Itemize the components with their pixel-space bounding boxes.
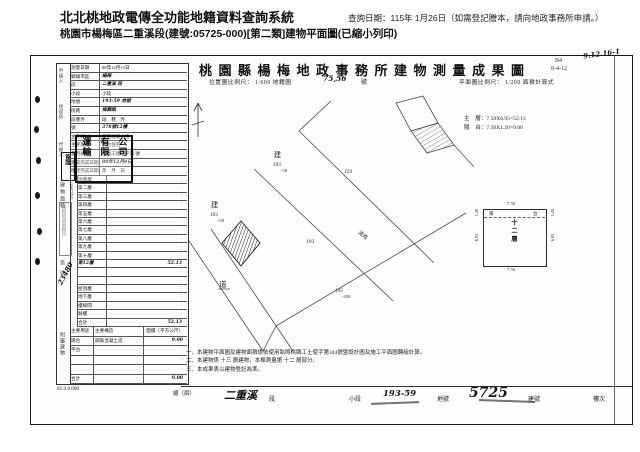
site-plan-drawing: 建 193 -58 193 建 193 -59 193 195 -458 道 道… xyxy=(186,93,476,353)
section-name: 二重溪 xyxy=(224,387,257,403)
area-row: 合計 52.13 xyxy=(77,319,187,327)
area-row-label: 樓梯間 xyxy=(77,302,107,309)
company-seal-col: 運輸 xyxy=(82,137,91,181)
area-row: 第十層 ‧ xyxy=(77,252,187,260)
section-label: 段 xyxy=(269,394,275,403)
area-row: 樓梯間 ‧ xyxy=(77,302,187,310)
balcony-label-right: 台 xyxy=(533,211,537,217)
annex-row-area: 9.00 xyxy=(144,375,187,384)
form-row-value: 梅獅路 xyxy=(100,107,187,115)
annex-row-area: ‧ xyxy=(144,356,187,365)
form-row-value: 88年12月15日 xyxy=(100,64,187,72)
area-row-value: ‧ xyxy=(107,201,187,208)
balcony-divider-line xyxy=(484,217,545,218)
survey-document: 都市計劃區 桃園縣楊梅地政事務所建物測量成果圖 B4 8-4-12 9.12.1… xyxy=(30,55,633,425)
margin-mark xyxy=(35,192,40,199)
form-row: 段巷弄 段 巷 弄 xyxy=(70,116,187,125)
floor-plan: 7.50 7.50 1.20 6.95 1.20 6.95 陽 台 十二層 xyxy=(471,197,561,281)
form-row-label: 街路 xyxy=(70,107,100,115)
area-row-label: 第12層 xyxy=(77,260,107,267)
annex-row: 平台 ‧ xyxy=(70,346,187,356)
parcel-number-label: 地號 xyxy=(437,394,449,403)
area-row-label: 第三層 xyxy=(77,193,107,200)
area-row-value: ‧ xyxy=(107,235,187,242)
annex-row-use: 合計 xyxy=(70,375,94,384)
annex-row-use: 平台 xyxy=(70,346,94,355)
page-subtitle: 桃園市楊梅區二重溪段(建號:05725-000)[第二類]建物平面圖(已縮小列印… xyxy=(60,26,397,41)
dim-right: 6.95 xyxy=(550,234,555,241)
annex-row-structure xyxy=(94,365,144,374)
area-row-label: 第五層 xyxy=(77,210,107,217)
area-row-label xyxy=(77,277,107,284)
parcel-label-jian2: 建 xyxy=(211,200,218,209)
dim-top: 7.50 xyxy=(507,201,515,206)
area-row-label: 第九層 xyxy=(77,243,107,250)
area-row: 地下層 ‧ xyxy=(77,293,187,301)
plan-scale-label: 平面圖比例尺： 1/200 面積計算式 xyxy=(459,77,554,86)
area-row: 第二層 ‧ xyxy=(77,184,187,192)
area-row-value: ‧ xyxy=(107,310,187,317)
area-row: 第四層 ‧ xyxy=(77,201,187,209)
corner-code: B4 xyxy=(555,58,562,64)
parcel-boundaries xyxy=(189,96,474,351)
notes-block: 一、本建物平面圖及建物面積係依使用執照桃縣工土使字第344號暨設計圖及施工平面圖… xyxy=(186,349,486,374)
annex-rows: 陽台 鋼筋混凝土造 9.00 平台 ‧ xyxy=(70,337,187,385)
system-title: 北北桃地政電傳全功能地籍資料查詢系統 xyxy=(60,7,294,26)
area-row-value: ‧ xyxy=(107,210,187,217)
annex-row-area: 9.00 xyxy=(144,337,187,346)
form-row: 地號 193-59 地號 xyxy=(70,98,187,107)
company-seal-col: 公司 xyxy=(118,137,127,181)
area-row: 屋頂層 ‧ xyxy=(77,285,187,293)
annex-row-use xyxy=(70,356,94,365)
copy-note: 縮（兩） xyxy=(173,389,195,397)
annex-row-structure xyxy=(94,356,144,365)
parcel-label-195-sub: -458 xyxy=(342,294,351,299)
annex-row-structure xyxy=(94,375,144,384)
area-row-label: 第十層 xyxy=(77,252,107,259)
map-sheet-unit: 號 xyxy=(361,77,367,86)
area-row-label: 第六層 xyxy=(77,218,107,225)
floor-number-label: 樓次 xyxy=(593,394,605,403)
area-row: 第三層 ‧ xyxy=(77,193,187,201)
scribble-mark xyxy=(371,401,419,405)
form-row-value: 193-59 地號 xyxy=(100,98,187,106)
road-label: 道 xyxy=(219,279,227,289)
annex-row: ‧ xyxy=(70,356,187,366)
area-row-value: ‧ xyxy=(107,184,187,191)
floor-area-rows: 地面層 ‧ 第二層 ‧ 第三層 ‧ 第四層 ‧ xyxy=(77,176,187,327)
form-row-label: 段 xyxy=(70,81,100,89)
annex-row: ‧ xyxy=(70,365,187,375)
area-row-label: 第七層 xyxy=(77,226,107,233)
annex-row: 陽台 鋼筋混凝土造 9.00 xyxy=(70,337,187,347)
area-row: ‧ xyxy=(77,268,187,276)
form-row-value: 段 巷 弄 xyxy=(100,116,187,124)
annex-header-row: 主要用途 主要構造 面積（平方公尺） xyxy=(70,327,187,337)
note-3: 三、本成果表以建物登記為準。 xyxy=(186,366,486,374)
area-row-label: 第八層 xyxy=(77,235,107,242)
dim-right-top: 1.20 xyxy=(550,209,555,216)
form-row: 號 378號12樓 xyxy=(70,124,187,133)
annex-structure-header: 主要構造 xyxy=(94,327,144,336)
annex-row-area: ‧ xyxy=(144,346,187,355)
subject-building-hatched xyxy=(222,221,260,266)
form-row: 段 二重溪 段 xyxy=(70,81,187,90)
floor-label: 十二層 xyxy=(509,219,518,244)
annex-row-structure xyxy=(94,346,144,355)
margin-mark xyxy=(35,258,40,265)
annex-row-use: 陽台 xyxy=(70,337,94,346)
area-row: 第七層 ‧ xyxy=(77,226,187,234)
form-row: 小段 小段 xyxy=(70,90,187,99)
area-row-value: ‧ xyxy=(107,285,187,292)
applicant-label: 申請人 xyxy=(58,68,64,84)
corner-code-2: 8-4-12 xyxy=(551,66,567,72)
form-print-code: 85.9.8.000 xyxy=(57,386,79,392)
margin-mark xyxy=(37,228,42,235)
area-row-label: 地下層 xyxy=(77,293,107,300)
company-seal: 運輸 有限 公司 xyxy=(75,135,133,183)
subsection-label: 小段 xyxy=(349,394,361,403)
area-row: 第五層 ‧ xyxy=(77,210,187,218)
margin-mark xyxy=(34,126,39,133)
dim-left-top: 1.20 xyxy=(474,209,479,216)
form-row-label: 鄉鎮市區 xyxy=(70,73,100,81)
form-row-label: 小段 xyxy=(70,90,100,98)
parcel-label-193-top: 193 xyxy=(344,169,353,175)
location-scale-label: 位置圖比例尺： 1/600 地籍圖 xyxy=(209,77,292,86)
area-row-label: 屋頂層 xyxy=(77,285,107,292)
area-row-value: 52.13 xyxy=(107,260,187,267)
annex-row-structure: 鋼筋混凝土造 xyxy=(94,337,144,346)
annex-row-use xyxy=(70,365,94,374)
area-row: 騎樓 ‧ xyxy=(77,310,187,318)
annex-use-header: 主要用途 xyxy=(70,327,94,336)
balcony-label-left: 陽 xyxy=(489,211,493,217)
query-date: 查詢日期：115年 1月26日（如需登記謄本，請向地政事務所申請。） xyxy=(348,12,603,24)
area-row: 第六層 ‧ xyxy=(77,218,187,226)
area-row-label: 騎樓 xyxy=(77,310,107,317)
small-seal-text: 簽證 xyxy=(63,154,71,165)
form-row-value: 378號12樓 xyxy=(100,124,187,132)
annex-strip-label: 附屬建物 xyxy=(58,332,65,356)
form-row: 街路 梅獅路 xyxy=(70,107,187,116)
note-1: 一、本建物平面圖及建物面積係依使用執照桃縣工土使字第344號暨設計圖及施工平面圖… xyxy=(186,349,486,357)
small-seal: 簽證 xyxy=(61,152,75,181)
office-seal: 楊梅地政事務所 xyxy=(59,202,72,256)
area-row-value: ‧ xyxy=(107,293,187,300)
parcel-label-193-59-sub: -59 xyxy=(218,218,225,223)
parcel-label-193-59: 193 xyxy=(210,212,218,218)
scribble-mark xyxy=(479,399,535,403)
office-seal-text: 楊梅地政事務所 xyxy=(61,205,67,236)
area-row-label: 合計 xyxy=(77,319,107,326)
form-row-label: 號 xyxy=(70,124,100,132)
annex-table: 主要用途 主要構造 面積（平方公尺） 陽台 鋼筋混凝土造 9.00 平台 xyxy=(70,327,187,384)
area-row-value: ‧ xyxy=(107,252,187,259)
form-row-label: 地號 xyxy=(70,98,100,106)
annex-row: 合計 9.00 xyxy=(70,375,187,385)
survey-form-table: 申請人 住居所 代理人 建物面積 附屬建物 （平方公尺） 測量日期 88年12月… xyxy=(56,63,189,385)
parcel-label-193-58: 193 xyxy=(273,162,281,168)
area-row-value: 52.13 xyxy=(107,319,187,326)
annex-area-header: 面積（平方公尺） xyxy=(144,327,187,336)
inner-margin-line xyxy=(614,56,615,424)
area-row-value: ‧ xyxy=(107,268,187,275)
form-row-value: 二重溪 段 xyxy=(100,81,187,89)
area-row-label xyxy=(77,268,107,275)
note-2: 二、本建物係 十三 層建物，本棟測量第 十二 層部分。 xyxy=(186,357,486,365)
area-unit-label: （平方公尺） xyxy=(70,180,75,202)
margin-mark xyxy=(36,157,41,164)
map-sheet-number: 75,56 xyxy=(323,74,347,83)
margin-mark xyxy=(35,96,40,103)
query-result-page: 北北桃地政電傳全功能地籍資料查詢系統 查詢日期：115年 1月26日（如需登記謄… xyxy=(0,0,640,452)
company-seal-col: 有限 xyxy=(100,137,109,181)
area-row-label: 第四層 xyxy=(77,201,107,208)
area-row-value: ‧ xyxy=(107,277,187,284)
area-row: 第八層 ‧ xyxy=(77,235,187,243)
parcel-number: 193-59 xyxy=(383,389,416,399)
road-name-label: 道路 xyxy=(357,228,371,241)
area-row-value: ‧ xyxy=(107,226,187,233)
form-row: 鄉鎮市區 楊梅 xyxy=(70,73,187,82)
dim-bottom: 7.50 xyxy=(507,267,515,272)
residence-label: 住居所 xyxy=(58,104,64,120)
form-row-label: 測量日期 xyxy=(70,64,100,72)
area-row: 第12層 52.13 xyxy=(77,260,187,268)
form-row-value: 楊梅 xyxy=(100,73,187,81)
area-row-value: ‧ xyxy=(107,302,187,309)
parcel-label-193-58-sub: -58 xyxy=(281,168,288,173)
area-row-label: 第二層 xyxy=(77,184,107,191)
area-row-value: ‧ xyxy=(107,193,187,200)
area-row: 第九層 ‧ xyxy=(77,243,187,251)
parcel-label-jian1: 建 xyxy=(274,150,281,159)
area-row-value: ‧ xyxy=(107,218,187,225)
dim-left: 6.95 xyxy=(474,234,479,241)
parcel-label-193-mid: 193 xyxy=(306,239,315,245)
area-row-value: ‧ xyxy=(107,243,187,250)
form-row: 測量日期 88年12月15日 xyxy=(70,64,187,73)
form-row-label: 段巷弄 xyxy=(70,116,100,124)
annex-row-area: ‧ xyxy=(144,365,187,374)
north-arrow-icon xyxy=(192,103,204,137)
form-row-value: 小段 xyxy=(100,90,187,98)
area-row: ‧ xyxy=(77,277,187,285)
